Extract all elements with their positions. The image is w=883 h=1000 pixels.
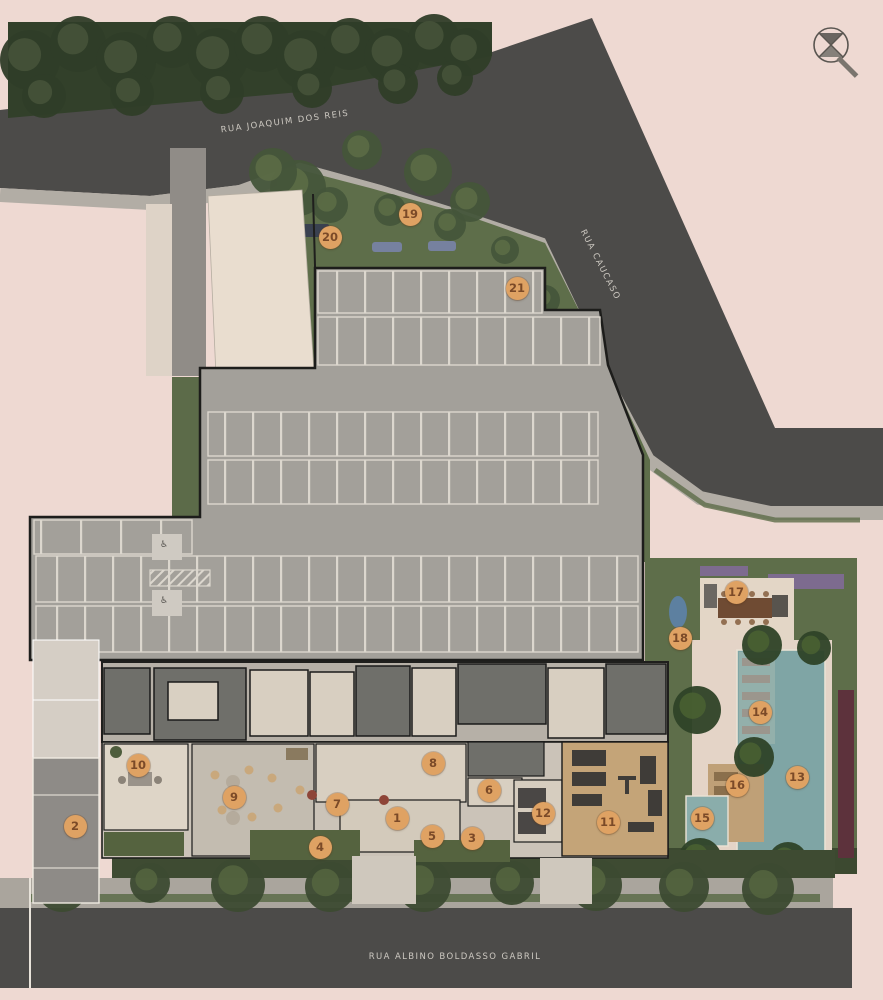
- reception-desk: [286, 748, 308, 760]
- street-surface-bottom: [0, 908, 852, 988]
- plan-marker-13: 13: [786, 766, 809, 789]
- site-plan: ♿ ♿ RUA JOAQUIM DOS REIS RUA CAUCASO RUA…: [0, 0, 883, 1000]
- ramp-slab: [208, 190, 314, 376]
- facade-planting: [250, 830, 360, 860]
- plan-marker-5: 5: [421, 825, 444, 848]
- facade-planting: [104, 832, 184, 856]
- plan-marker-11: 11: [597, 811, 620, 834]
- gym: [562, 742, 668, 856]
- plan-marker-15: 15: [691, 807, 714, 830]
- armchair: [379, 795, 389, 805]
- entry-walkway: [352, 856, 416, 904]
- flower-bed-purple: [700, 566, 748, 576]
- north-compass-icon: [814, 28, 858, 78]
- service-room: [468, 742, 544, 776]
- entry-walkway: [540, 858, 592, 904]
- plan-marker-21: 21: [506, 277, 529, 300]
- plan-marker-3: 3: [461, 827, 484, 850]
- parking-stalls: [34, 271, 638, 652]
- plan-marker-9: 9: [223, 786, 246, 809]
- plan-marker-17: 17: [725, 581, 748, 604]
- plan-marker-2: 2: [64, 815, 87, 838]
- plan-marker-6: 6: [478, 779, 501, 802]
- grill: [704, 584, 717, 608]
- site-plan-drawing: [0, 0, 883, 1000]
- driveway-lane: [170, 148, 206, 376]
- parking-deck: [30, 268, 643, 660]
- plan-marker-14: 14: [749, 701, 772, 724]
- plan-marker-19: 19: [399, 203, 422, 226]
- plan-marker-12: 12: [532, 802, 555, 825]
- plan-marker-4: 4: [309, 836, 332, 859]
- flower-bed-blue: [372, 242, 402, 252]
- plan-marker-20: 20: [319, 226, 342, 249]
- plan-marker-7: 7: [326, 793, 349, 816]
- plan-marker-1: 1: [386, 807, 409, 830]
- wheelchair-icon: ♿: [160, 540, 168, 550]
- dining-table: [718, 598, 772, 618]
- bottom-street: [0, 850, 852, 988]
- garden-pond: [669, 596, 687, 628]
- lounge-set: [772, 595, 788, 617]
- ramp-slab-2: [146, 204, 172, 376]
- service-driveway: [33, 640, 99, 903]
- no-parking-hatch: [150, 570, 210, 586]
- plan-marker-8: 8: [422, 752, 445, 775]
- plan-marker-10: 10: [127, 754, 150, 777]
- service-rooms: [104, 664, 666, 740]
- plan-marker-18: 18: [669, 627, 692, 650]
- flower-bed-blue: [428, 241, 456, 251]
- plan-marker-16: 16: [726, 774, 749, 797]
- armchair: [307, 790, 317, 800]
- street-name-bottom: RUA ALBINO BOLDASSO GABRIL: [369, 952, 542, 962]
- wheelchair-icon: ♿: [160, 596, 168, 606]
- flower-bed-maroon: [838, 690, 854, 858]
